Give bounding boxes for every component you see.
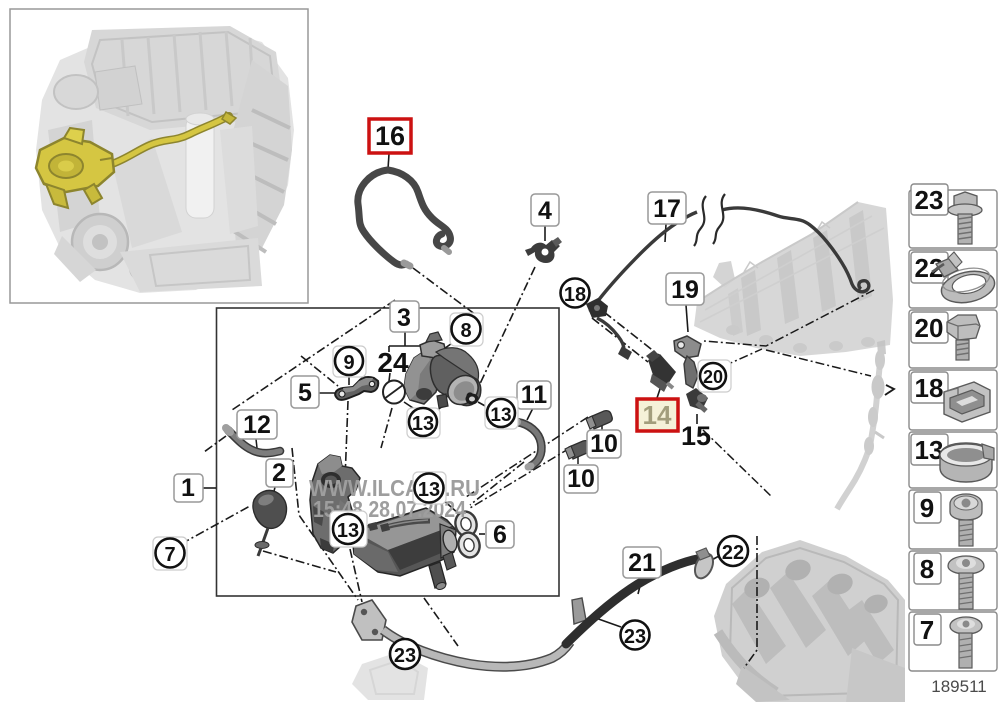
svg-text:3: 3 bbox=[397, 304, 411, 332]
svg-text:15: 15 bbox=[681, 421, 711, 451]
svg-text:13: 13 bbox=[418, 479, 440, 501]
svg-text:10: 10 bbox=[567, 465, 595, 493]
svg-text:24: 24 bbox=[377, 347, 409, 378]
svg-text:6: 6 bbox=[493, 521, 507, 549]
svg-text:22: 22 bbox=[722, 542, 744, 564]
svg-text:16: 16 bbox=[375, 121, 405, 151]
svg-text:13: 13 bbox=[915, 435, 944, 465]
svg-text:20: 20 bbox=[703, 367, 723, 387]
svg-text:23: 23 bbox=[394, 645, 416, 667]
svg-text:1: 1 bbox=[181, 474, 195, 502]
svg-text:23: 23 bbox=[915, 185, 944, 215]
svg-text:13: 13 bbox=[490, 405, 511, 426]
svg-text:9: 9 bbox=[343, 352, 354, 374]
svg-text:14: 14 bbox=[643, 400, 672, 430]
svg-text:20: 20 bbox=[915, 313, 944, 343]
svg-text:9: 9 bbox=[920, 493, 934, 523]
svg-text:18: 18 bbox=[915, 373, 944, 403]
svg-text:17: 17 bbox=[653, 195, 681, 223]
svg-text:13: 13 bbox=[412, 413, 434, 435]
svg-text:23: 23 bbox=[624, 626, 646, 648]
svg-text:4: 4 bbox=[538, 197, 552, 225]
svg-text:10: 10 bbox=[590, 430, 618, 458]
svg-text:18: 18 bbox=[564, 284, 586, 306]
svg-text:2: 2 bbox=[272, 459, 286, 487]
svg-text:12: 12 bbox=[243, 411, 271, 439]
svg-text:13: 13 bbox=[337, 520, 359, 542]
svg-text:7: 7 bbox=[164, 544, 175, 566]
svg-text:8: 8 bbox=[460, 320, 471, 342]
svg-text:8: 8 bbox=[920, 554, 934, 584]
svg-text:5: 5 bbox=[298, 379, 312, 407]
svg-text:7: 7 bbox=[920, 615, 934, 645]
svg-text:189511: 189511 bbox=[931, 677, 986, 696]
svg-text:21: 21 bbox=[628, 549, 656, 577]
svg-text:19: 19 bbox=[671, 276, 699, 304]
svg-text:11: 11 bbox=[521, 381, 548, 409]
